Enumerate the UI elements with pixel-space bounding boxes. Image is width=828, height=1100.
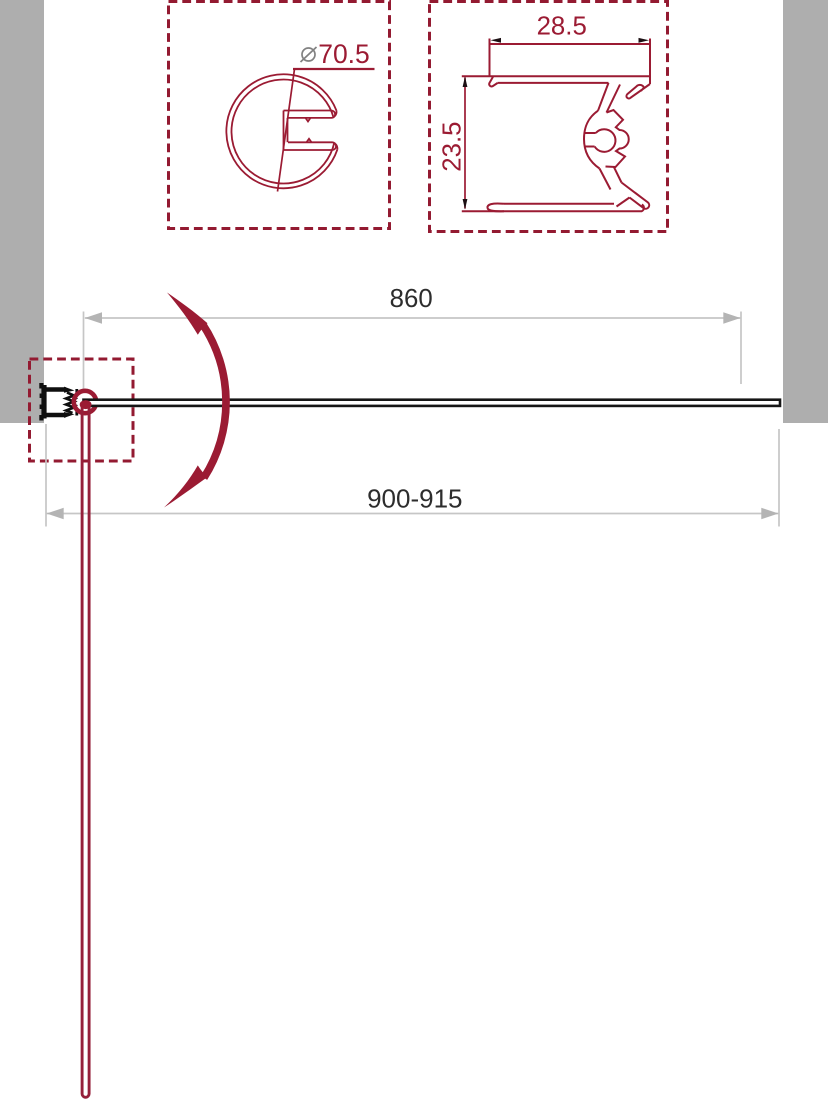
svg-text:70.5: 70.5 [318,39,370,69]
svg-text:860: 860 [390,285,433,313]
svg-text:900-915: 900-915 [367,484,462,514]
svg-text:23.5: 23.5 [438,121,466,171]
svg-text:28.5: 28.5 [537,12,587,40]
